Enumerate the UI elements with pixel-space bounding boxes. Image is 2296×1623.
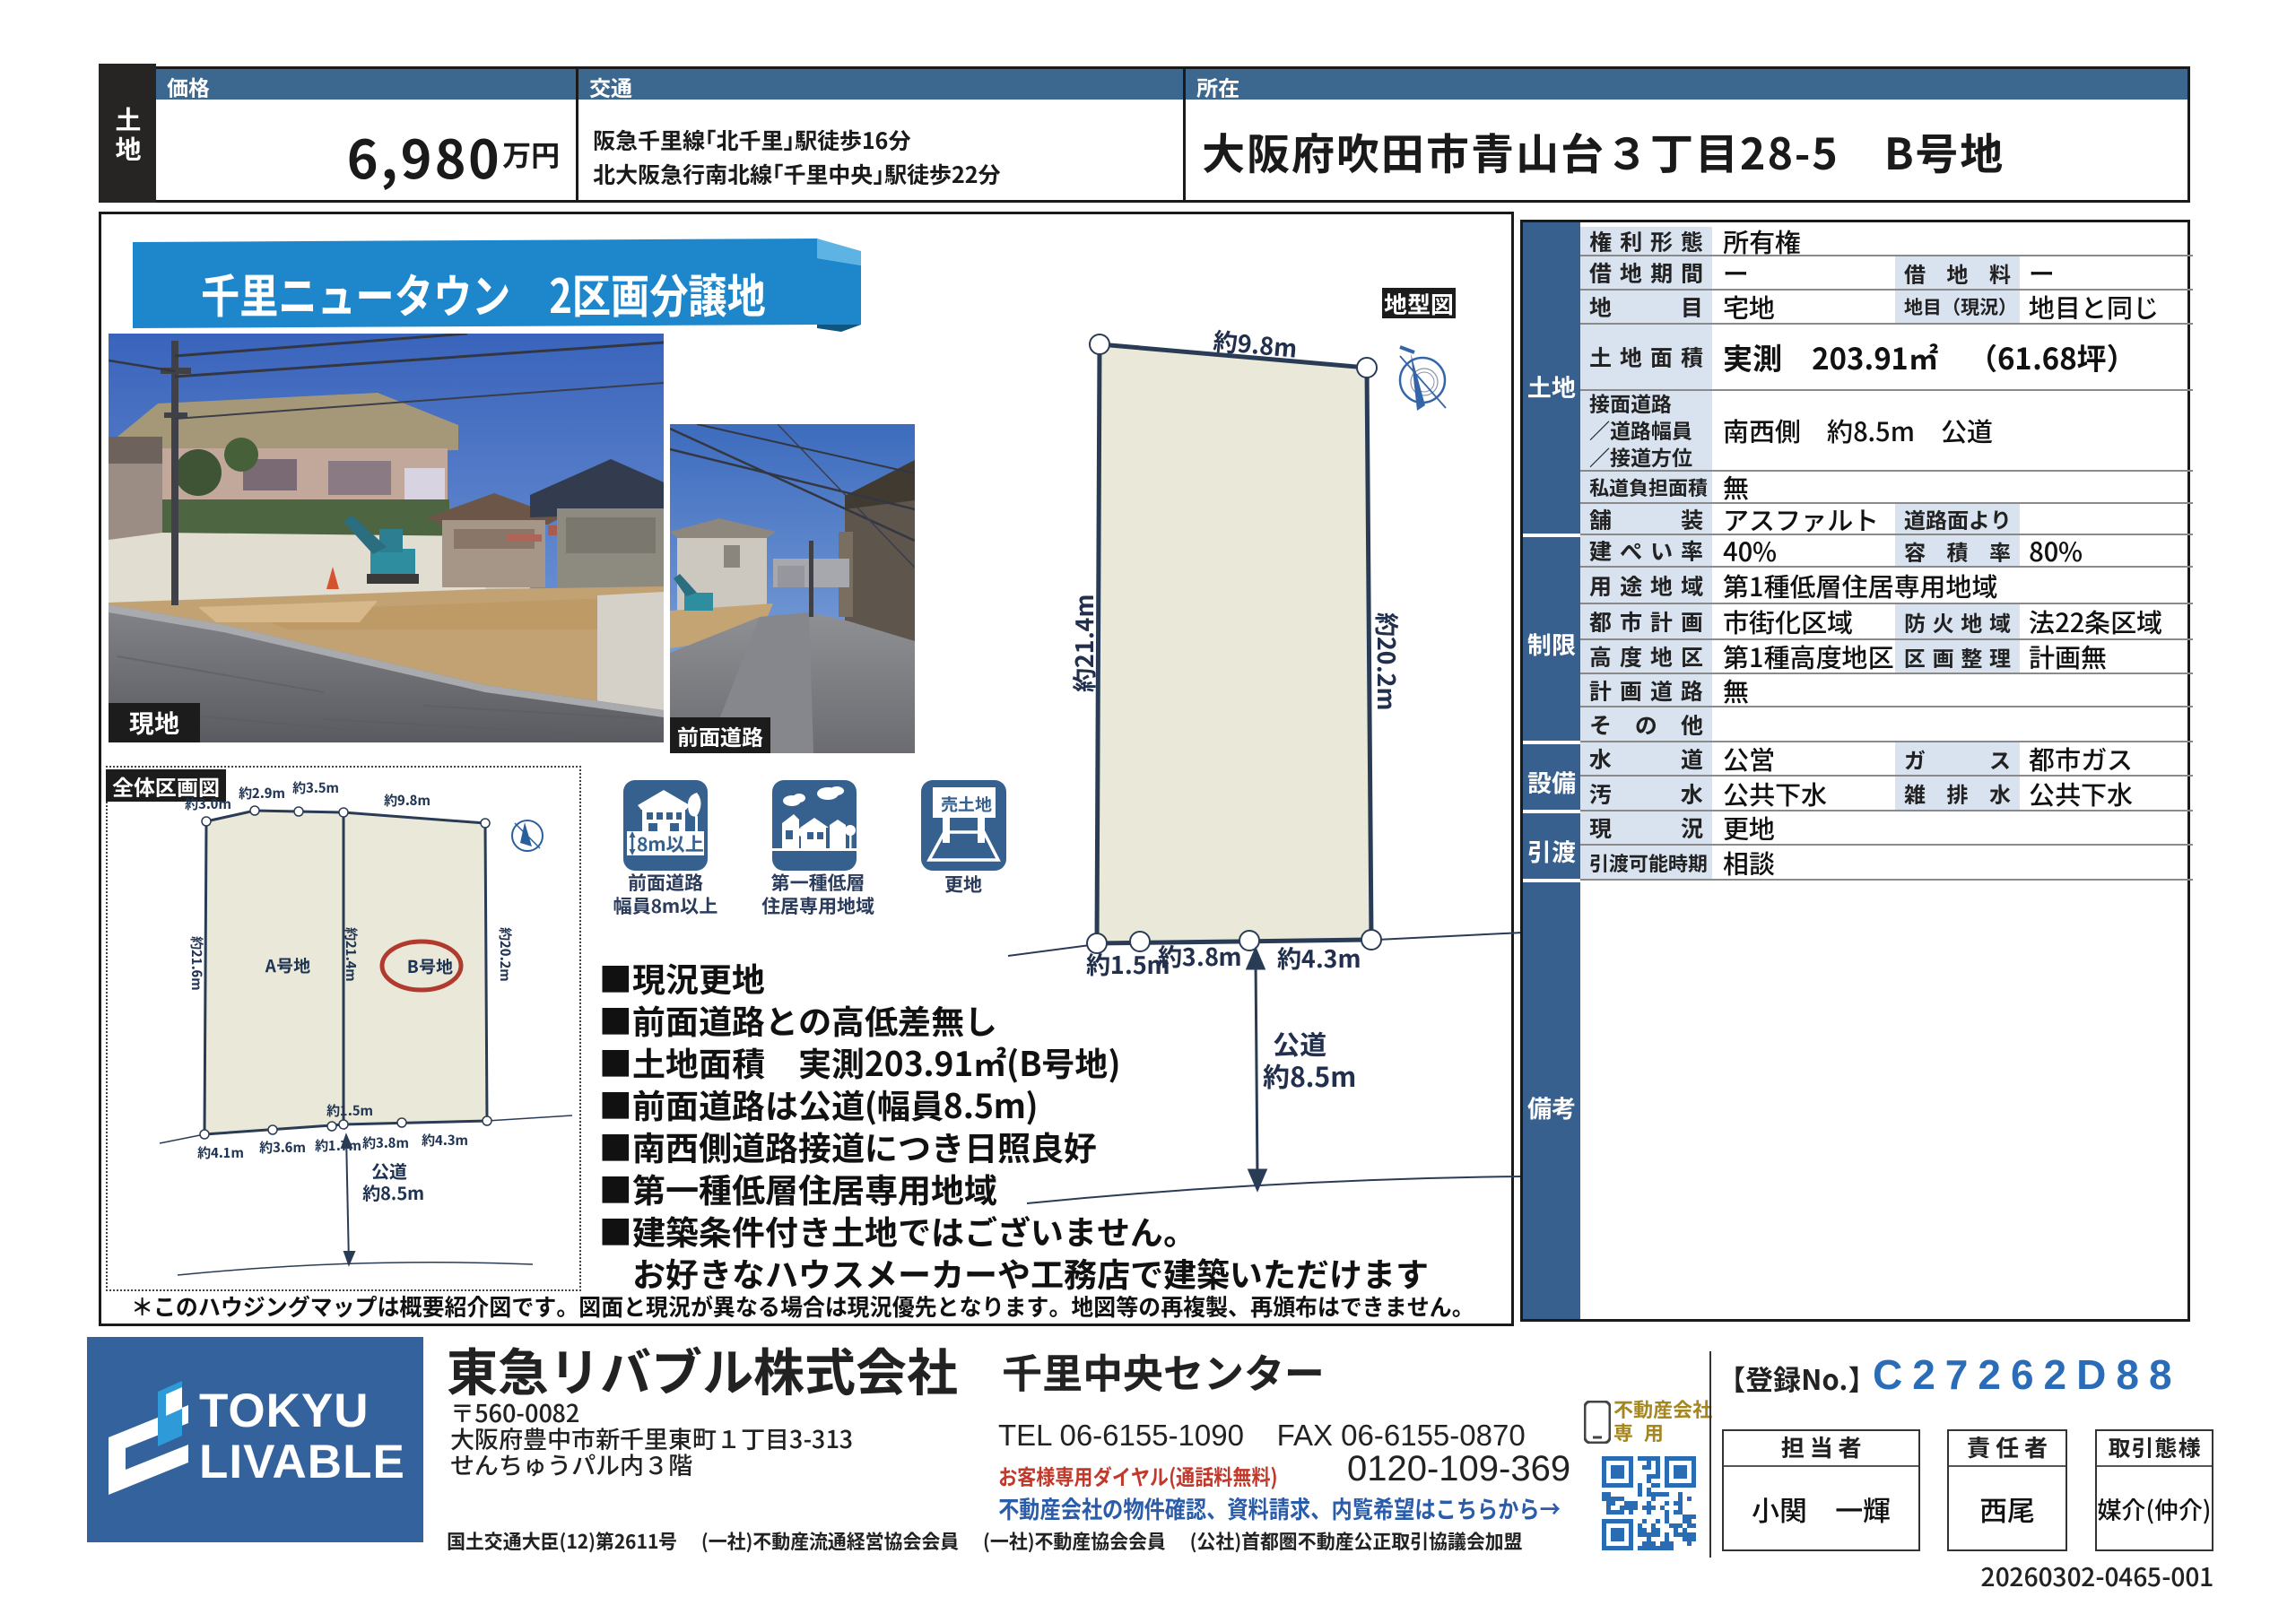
svg-text:約20.2m: 約20.2m — [496, 927, 515, 982]
svg-text:約3.8m: 約3.8m — [1158, 938, 1242, 973]
svg-text:約21.4m: 約21.4m — [1065, 594, 1100, 692]
svg-text:約1.7m: 約1.7m — [315, 1136, 361, 1155]
svg-text:約3.8m: 約3.8m — [362, 1133, 409, 1152]
svg-text:約21.6m: 約21.6m — [187, 936, 206, 991]
svg-text:約3.6m: 約3.6m — [259, 1138, 306, 1157]
svg-text:約20.2m: 約20.2m — [1370, 612, 1405, 711]
svg-text:約4.3m: 約4.3m — [1277, 940, 1361, 975]
svg-text:約3.5m: 約3.5m — [292, 778, 339, 797]
svg-text:約4.3m: 約4.3m — [422, 1131, 468, 1150]
svg-text:約3.0m: 約3.0m — [185, 794, 231, 813]
svg-text:約2.9m: 約2.9m — [239, 784, 285, 803]
svg-text:約8.5m: 約8.5m — [1263, 1055, 1356, 1095]
svg-text:B号地: B号地 — [407, 954, 453, 978]
svg-text:約9.8m: 約9.8m — [384, 791, 430, 810]
svg-text:約21.4m: 約21.4m — [342, 927, 361, 982]
svg-text:A号地: A号地 — [265, 953, 310, 977]
svg-text:約8.5m: 約8.5m — [362, 1179, 424, 1205]
svg-text:約1.5m: 約1.5m — [326, 1101, 373, 1120]
svg-text:約4.1m: 約4.1m — [197, 1143, 244, 1162]
svg-text:8m以上: 8m以上 — [637, 830, 704, 857]
